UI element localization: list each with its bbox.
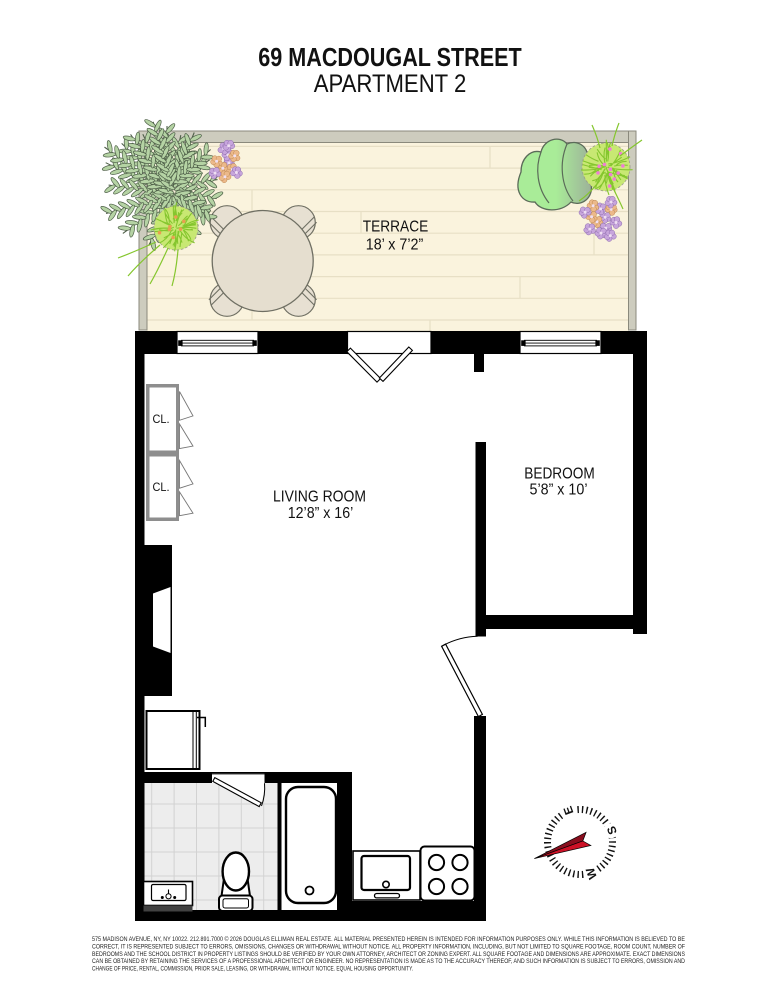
svg-text:CHANGE OF PRICE, RENTAL, COMMI: CHANGE OF PRICE, RENTAL, COMMISSION, PRI…: [92, 966, 413, 973]
svg-text:CORRECT, IT IS REPRESENTED SUB: CORRECT, IT IS REPRESENTED SUBJECT TO ER…: [92, 943, 685, 950]
svg-text:APARTMENT 2: APARTMENT 2: [314, 70, 467, 98]
svg-text:W: W: [583, 865, 600, 881]
svg-text:BEDROOM: BEDROOM: [524, 466, 595, 483]
svg-text:CL.: CL.: [153, 482, 170, 494]
svg-text:TERRACE: TERRACE: [363, 219, 429, 236]
svg-text:575 MADISON AVENUE, NY, NY 100: 575 MADISON AVENUE, NY, NY 10022. 212.89…: [92, 936, 685, 943]
svg-text:12’8” x 16’: 12’8” x 16’: [288, 505, 354, 522]
svg-text:CAN BE OBTAINED BY RETAINING T: CAN BE OBTAINED BY RETAINING THE SERVICE…: [92, 958, 686, 965]
svg-text:5’8” x 10’: 5’8” x 10’: [530, 482, 588, 499]
svg-text:CL.: CL.: [153, 414, 170, 426]
svg-text:18’ x 7’2”: 18’ x 7’2”: [366, 237, 424, 254]
svg-text:69 MACDOUGAL STREET: 69 MACDOUGAL STREET: [258, 42, 522, 72]
svg-text:BEDROOMS AND THE SCHOOL DISTRI: BEDROOMS AND THE SCHOOL DISTRICT IN PROP…: [92, 951, 685, 958]
svg-text:LIVING ROOM: LIVING ROOM: [273, 489, 366, 506]
